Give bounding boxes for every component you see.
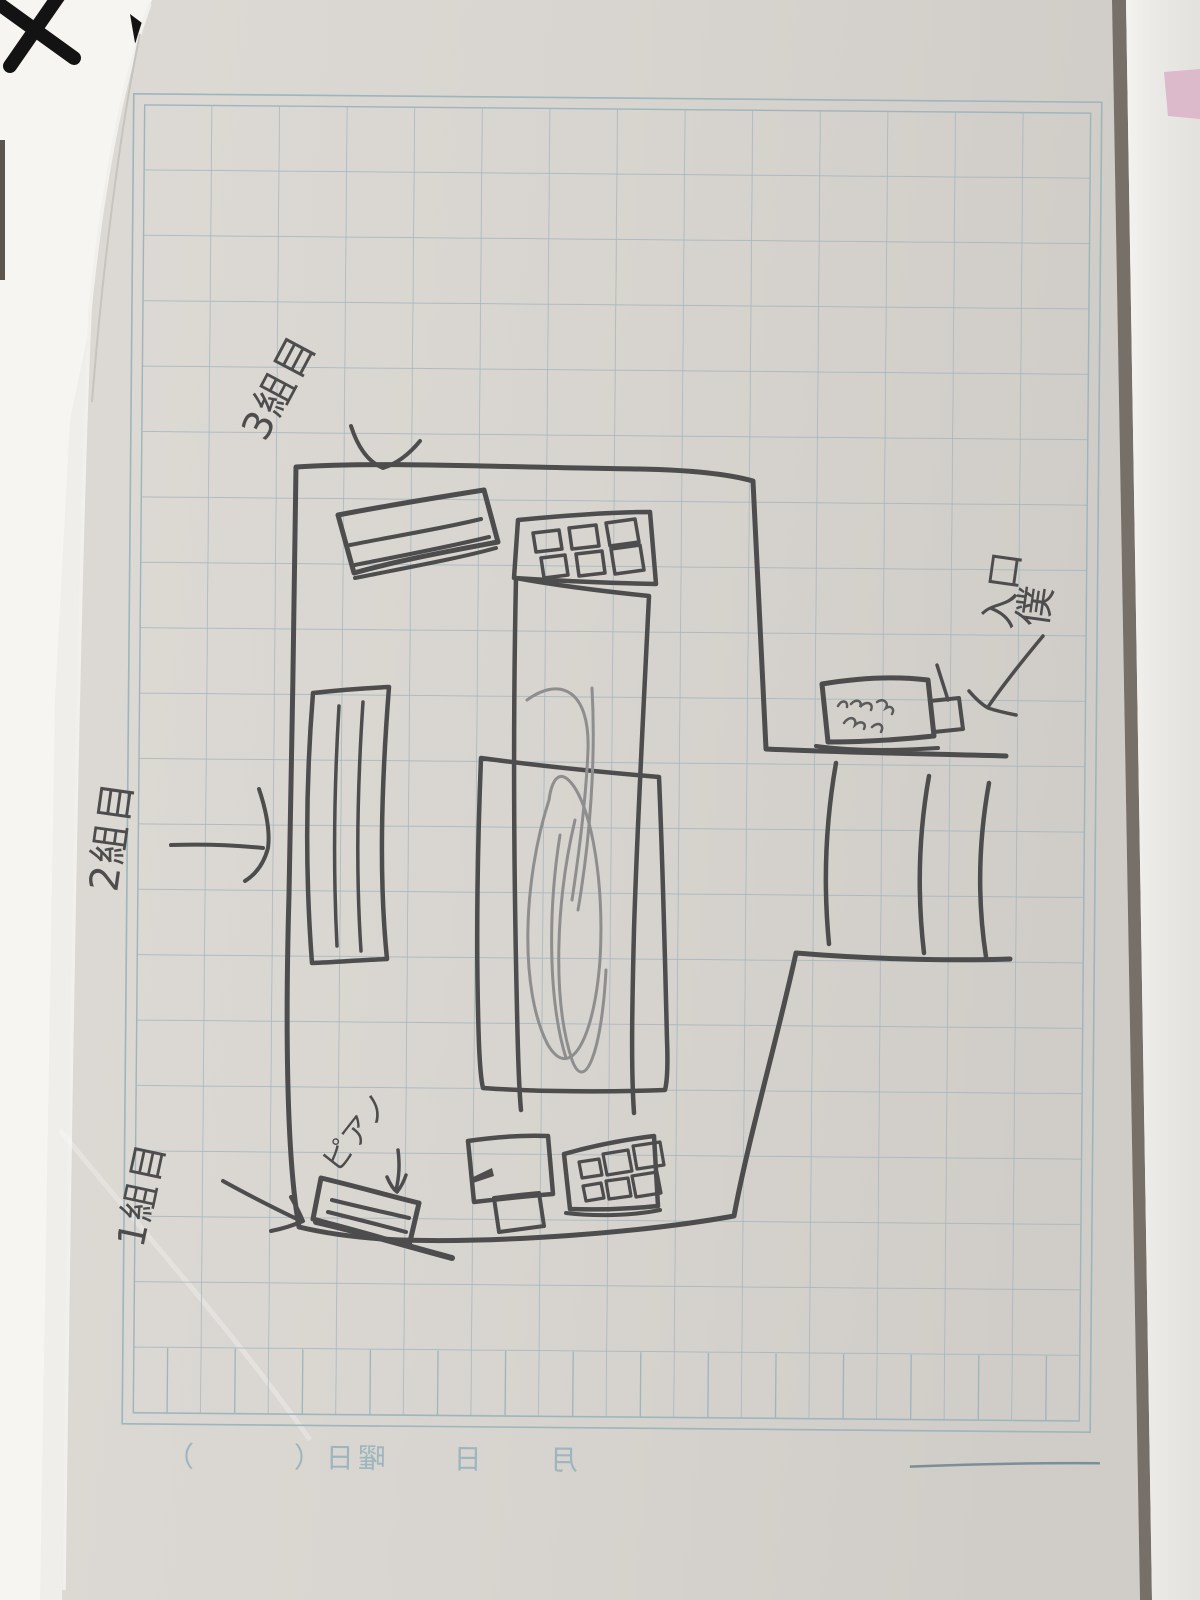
footer-date-text: 月 日 曜日（ ） — [162, 1440, 578, 1477]
paper-edge-shadow — [0, 140, 5, 280]
pink-tab — [1164, 69, 1200, 119]
sketch-canvas: 月 日 曜日（ ） — [0, 0, 1200, 1600]
page-grid: 月 日 曜日（ ） — [122, 94, 1112, 1481]
label-me: 僕 — [1010, 583, 1061, 629]
photo-of-sketchbook-page: 月 日 曜日（ ） — [0, 0, 1200, 1600]
